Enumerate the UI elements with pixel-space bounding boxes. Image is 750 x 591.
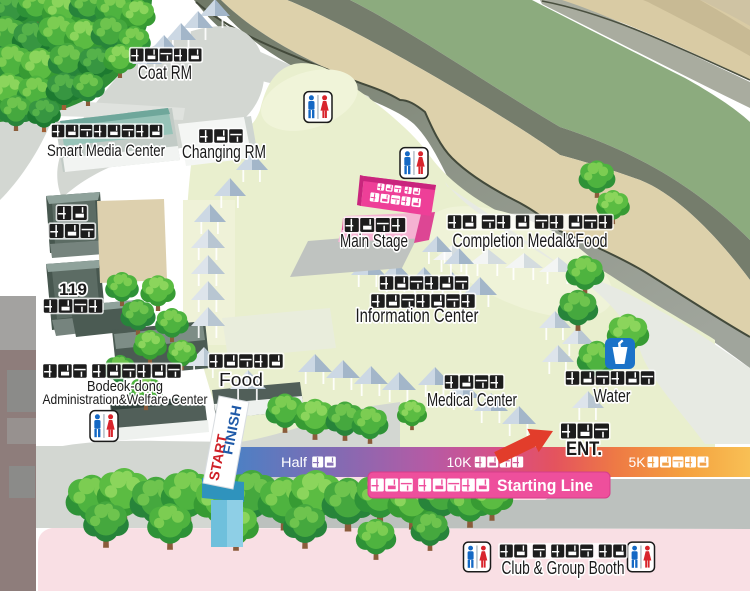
svg-text:Starting Line: Starting Line xyxy=(497,477,593,495)
svg-text:ENT.: ENT. xyxy=(566,439,602,460)
svg-text:Completion Medal&Food: Completion Medal&Food xyxy=(453,231,608,252)
svg-text:Half: Half xyxy=(281,455,307,470)
svg-text:5K: 5K xyxy=(629,455,646,470)
svg-text:Smart Media Center: Smart Media Center xyxy=(47,141,165,160)
svg-text:Medical Center: Medical Center xyxy=(427,390,517,410)
svg-text:Information Center: Information Center xyxy=(356,306,480,327)
svg-text:119: 119 xyxy=(59,280,87,299)
svg-text:Food: Food xyxy=(219,370,263,390)
svg-text:Changing RM: Changing RM xyxy=(182,142,266,162)
svg-text:Main Stage: Main Stage xyxy=(340,231,408,251)
svg-text:10K: 10K xyxy=(447,455,472,470)
svg-text:Administration&Welfare Center: Administration&Welfare Center xyxy=(43,391,208,407)
svg-text:Club & Group Booth: Club & Group Booth xyxy=(502,558,625,578)
svg-text:Water: Water xyxy=(594,386,631,406)
svg-text:Coat RM: Coat RM xyxy=(138,63,192,84)
